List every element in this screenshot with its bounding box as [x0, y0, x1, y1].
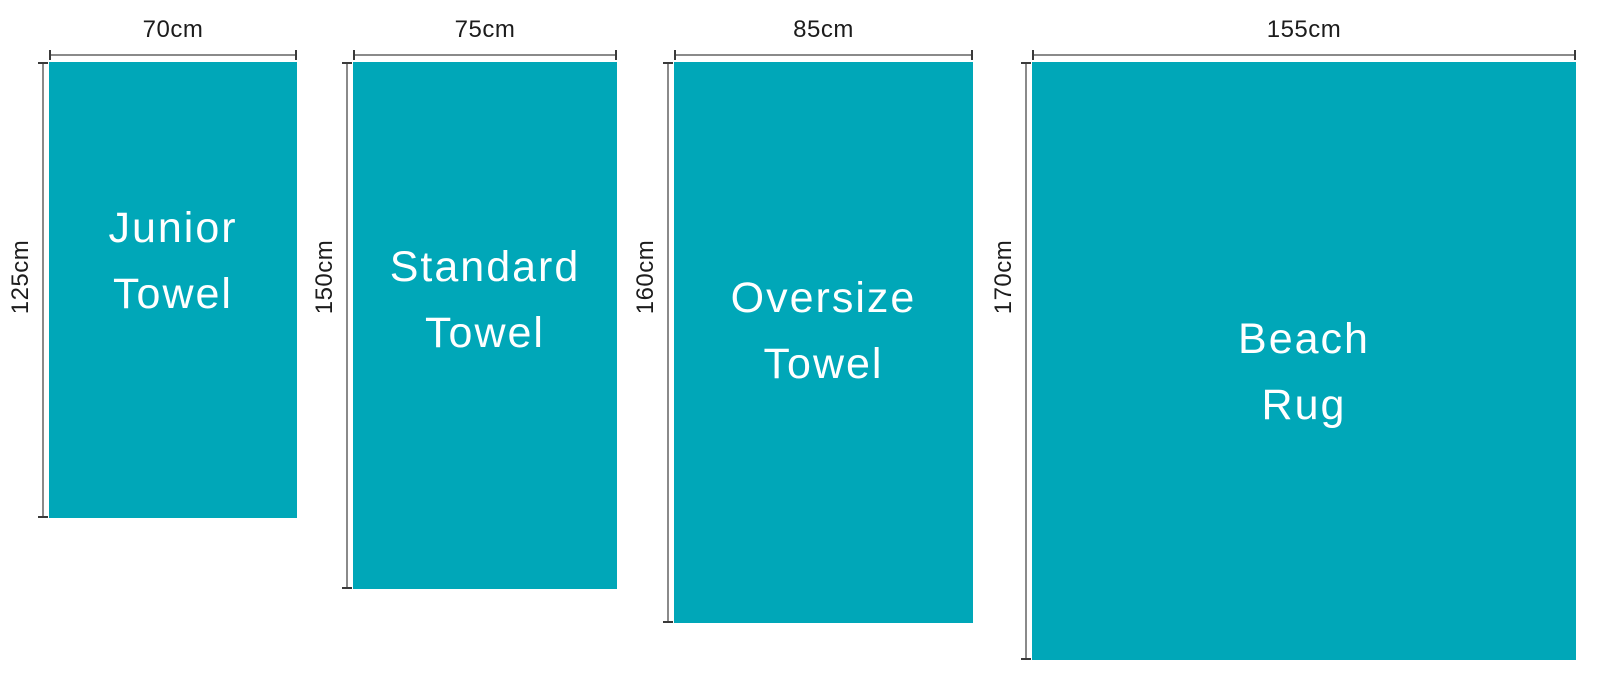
towel-group-beach-rug: 155cm 170cm Beach Rug: [1032, 62, 1576, 660]
dimension-tick: [615, 50, 617, 60]
towel-group-junior: 70cm 125cm Junior Towel: [49, 62, 297, 518]
towel-name-line2: Towel: [353, 300, 617, 366]
width-dimension-line: [49, 54, 297, 56]
towel-group-oversize: 85cm 160cm Oversize Towel: [674, 62, 973, 623]
dimension-tick: [49, 50, 51, 60]
towel-name-line1: Beach: [1032, 306, 1576, 372]
dimension-tick: [38, 62, 48, 64]
height-dimension-line: [42, 62, 44, 518]
towel-name-line2: Towel: [49, 261, 297, 327]
height-label: 170cm: [990, 240, 1018, 315]
towel-name-line1: Standard: [353, 234, 617, 300]
towel-rectangle: Beach Rug: [1032, 62, 1576, 660]
size-comparison-diagram: 70cm 125cm Junior Towel 75cm 150cm Stand…: [0, 0, 1598, 676]
height-label: 150cm: [311, 240, 339, 315]
width-label: 70cm: [49, 16, 297, 44]
height-dimension-line: [1025, 62, 1027, 660]
width-dimension-line: [674, 54, 973, 56]
dimension-tick: [342, 587, 352, 589]
towel-group-standard: 75cm 150cm Standard Towel: [353, 62, 617, 589]
height-dimension-line: [667, 62, 669, 623]
width-dimension-line: [353, 54, 617, 56]
towel-rectangle: Standard Towel: [353, 62, 617, 589]
towel-name: Oversize Towel: [674, 265, 973, 397]
towel-name-line2: Towel: [674, 331, 973, 397]
dimension-tick: [1021, 658, 1031, 660]
dimension-tick: [663, 621, 673, 623]
height-label: 160cm: [632, 240, 660, 315]
towel-name: Beach Rug: [1032, 306, 1576, 438]
width-label: 75cm: [353, 16, 617, 44]
width-label: 155cm: [1032, 16, 1576, 44]
towel-name: Standard Towel: [353, 234, 617, 366]
towel-rectangle: Oversize Towel: [674, 62, 973, 623]
width-label: 85cm: [674, 16, 973, 44]
towel-name-line1: Oversize: [674, 265, 973, 331]
dimension-tick: [971, 50, 973, 60]
dimension-tick: [663, 62, 673, 64]
height-dimension-line: [346, 62, 348, 589]
towel-rectangle: Junior Towel: [49, 62, 297, 518]
dimension-tick: [1032, 50, 1034, 60]
towel-name-line2: Rug: [1032, 372, 1576, 438]
towel-name: Junior Towel: [49, 195, 297, 327]
dimension-tick: [38, 516, 48, 518]
width-dimension-line: [1032, 54, 1576, 56]
dimension-tick: [674, 50, 676, 60]
dimension-tick: [1574, 50, 1576, 60]
dimension-tick: [295, 50, 297, 60]
dimension-tick: [342, 62, 352, 64]
towel-name-line1: Junior: [49, 195, 297, 261]
dimension-tick: [353, 50, 355, 60]
dimension-tick: [1021, 62, 1031, 64]
height-label: 125cm: [7, 240, 35, 315]
